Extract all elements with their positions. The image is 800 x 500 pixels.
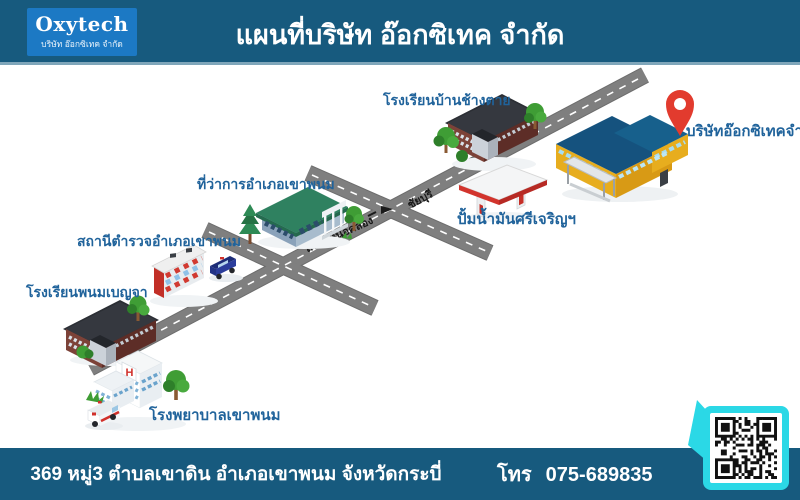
location-label-school-phanombenja: โรงเรียนพนมเบญจา [26, 282, 148, 304]
page-title: แผนที่บริษัท อ๊อกซิเทค จำกัด [140, 13, 660, 56]
logo-title: Oxytech [35, 13, 128, 35]
police-car-icon [209, 256, 243, 282]
qr-code-pattern [715, 417, 777, 479]
grass-icon [342, 232, 352, 239]
tree-icon [163, 370, 190, 400]
location-label-school-banchangtai: โรงเรียนบ้านช้างตาย [383, 90, 511, 112]
company-logo: Oxytech บริษัท อ๊อกซิเทค จำกัด [27, 8, 137, 56]
phone-label: โทร [497, 464, 532, 486]
location-label-police-station: สถานีตำรวจอำเภอเขาพนม [77, 231, 241, 253]
map-page: Oxytech บริษัท อ๊อกซิเทค จำกัด แผนที่บริ… [0, 0, 800, 500]
footer-phone: โทร075-689835 [497, 458, 652, 490]
police-station-building-icon [148, 245, 256, 309]
pine-tree-icon [239, 204, 261, 244]
footer-address: 369 หมู่3 ตำบลเขาดิน อำเภอเขาพนม จังหวัด… [16, 459, 456, 489]
location-label-gas-station: ปั้มน้ำมันศรีเจริญฯ [457, 207, 576, 231]
location-label-district-office: ที่ว่าการอำเภอเขาพนม [197, 174, 335, 196]
qr-background [710, 413, 782, 483]
logo-subtitle: บริษัท อ๊อกซิเทค จำกัด [41, 37, 123, 51]
phone-number: 075-689835 [546, 464, 653, 486]
location-label-hospital: โรงพยาบาลเขาพนม [149, 403, 281, 427]
location-label-company: บริษัทอ๊อกซิเทคจำกัด [686, 119, 800, 143]
